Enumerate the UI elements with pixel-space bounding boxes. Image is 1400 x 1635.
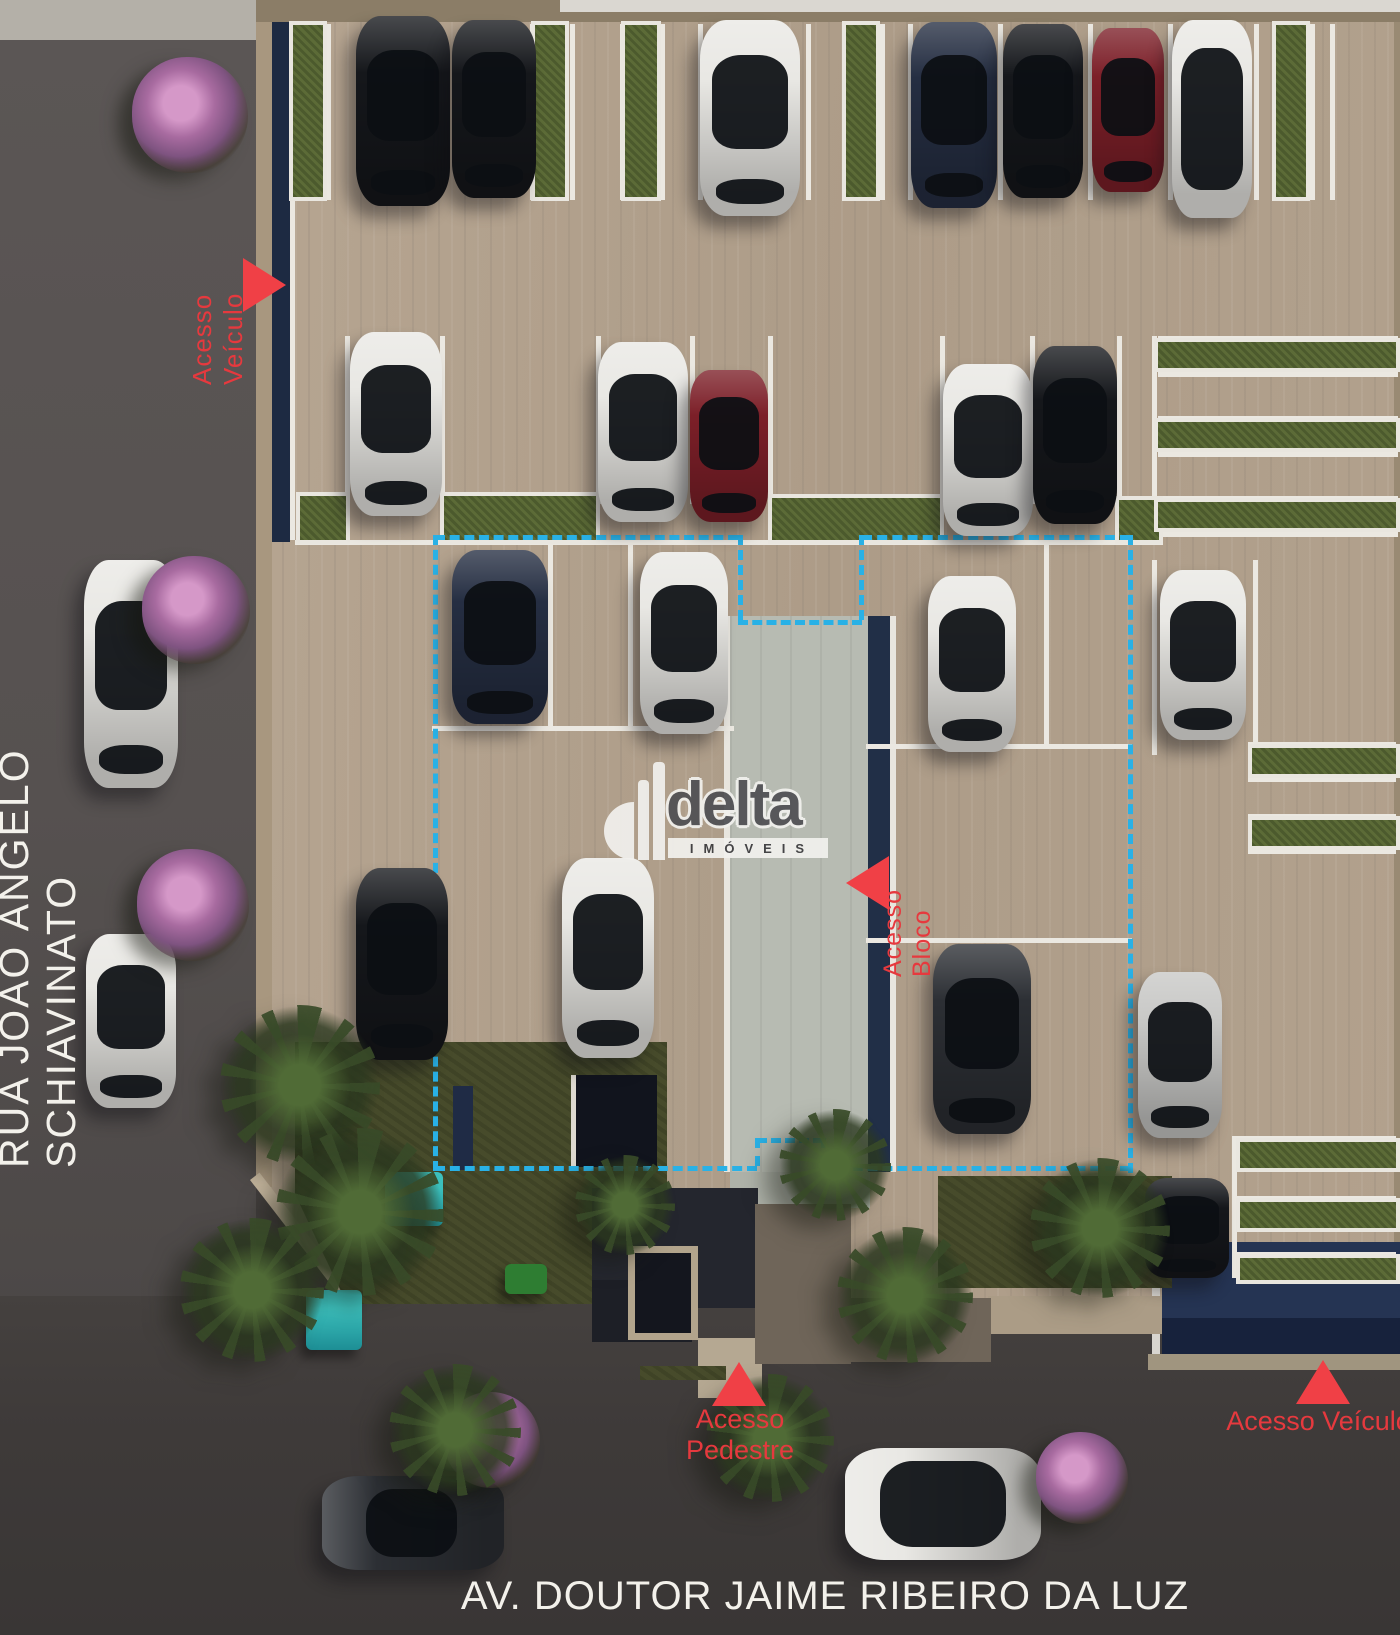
parking-line: [1248, 778, 1396, 782]
car: [86, 934, 176, 1108]
parking-line: [1248, 850, 1396, 854]
hedge-strip: [444, 496, 596, 540]
parking-line: [660, 24, 665, 200]
car: [452, 20, 536, 198]
hedge-strip: [1158, 342, 1396, 368]
logo-subtitle: IMÓVEIS: [668, 838, 828, 858]
parking-line: [1158, 532, 1398, 537]
palm-tree: [837, 1227, 973, 1363]
parking-line: [1158, 336, 1398, 341]
palm-tree: [1030, 1158, 1170, 1298]
car: [845, 1448, 1041, 1560]
car-rear-glass: [925, 173, 984, 197]
parking-line: [570, 24, 575, 200]
car: [1138, 972, 1222, 1138]
access-pedestrian-label: Acesso Pedestre: [640, 1404, 840, 1466]
car: [943, 364, 1033, 536]
car: [640, 552, 728, 734]
car-rear-glass: [99, 745, 163, 775]
parking-line: [1158, 452, 1398, 457]
delta-logo-icon: [604, 802, 634, 860]
car-glass: [361, 365, 431, 453]
parking-line: [1158, 416, 1398, 421]
access-vehicle-top-arrow-icon: [243, 258, 286, 312]
ramp-wall: [453, 1086, 473, 1170]
car: [562, 858, 654, 1058]
hedge-strip: [535, 25, 565, 197]
palm-tree: [779, 1109, 891, 1221]
parking-line: [1236, 1252, 1396, 1257]
car: [1092, 28, 1164, 192]
vehicle-driveway-ramp: [1162, 1318, 1400, 1358]
car-glass: [462, 52, 526, 137]
parking-line: [1232, 1136, 1237, 1278]
access-block-arrow-icon: [846, 856, 889, 910]
flowering-tree: [132, 57, 248, 173]
car-glass: [954, 395, 1022, 478]
car: [356, 868, 448, 1060]
car-rear-glass: [957, 503, 1018, 525]
parking-line: [1236, 1196, 1396, 1201]
car-rear-glass: [365, 481, 428, 505]
hedge-strip: [846, 25, 876, 197]
parking-line: [1236, 1136, 1396, 1141]
logo-brand: delta: [666, 774, 801, 836]
car-rear-glass: [654, 699, 714, 723]
car-glass: [651, 585, 718, 672]
car: [350, 332, 442, 516]
flowering-tree: [137, 849, 249, 961]
hedge-strip: [1276, 25, 1306, 197]
delta-logo-icon: [638, 780, 649, 860]
building-outline: [755, 1138, 760, 1166]
car-rear-glass: [467, 691, 532, 714]
parking-line: [1152, 560, 1157, 755]
car-glass: [367, 903, 437, 995]
stair-pit-edge: [571, 1075, 576, 1167]
parking-line: [1248, 742, 1396, 746]
stair-pit: [575, 1075, 657, 1167]
car-rear-glass: [1104, 161, 1153, 182]
parking-line: [1253, 560, 1258, 755]
car-rear-glass: [1174, 708, 1233, 730]
car-rear-glass: [1151, 1106, 1208, 1128]
car: [598, 342, 688, 522]
access-pedestrian-arrow-icon: [712, 1362, 766, 1406]
car: [1160, 570, 1246, 740]
building-outline: [435, 535, 738, 540]
car: [1003, 24, 1083, 198]
car: [1033, 346, 1117, 524]
parking-line: [768, 336, 773, 504]
parking-line: [295, 540, 1163, 545]
parking-line: [1254, 24, 1259, 200]
car-glass: [712, 55, 788, 149]
car-glass: [97, 965, 165, 1049]
car-glass: [1170, 601, 1235, 683]
delta-imoveis-watermark: delta IMÓVEIS: [604, 750, 834, 868]
car: [933, 944, 1031, 1134]
car-rear-glass: [371, 1024, 434, 1049]
car-glass: [367, 50, 438, 141]
car-glass: [945, 978, 1020, 1069]
car-glass: [1043, 378, 1107, 463]
parking-line: [1117, 336, 1122, 504]
hedge-strip: [1158, 422, 1396, 448]
car-glass: [921, 55, 986, 144]
curb-bottom-right: [1148, 1354, 1400, 1370]
parking-line: [1310, 24, 1315, 200]
car: [928, 576, 1016, 752]
building-outline: [738, 620, 862, 625]
car-rear-glass: [949, 1098, 1016, 1123]
access-vehicle-bottom-label: Acesso Veículo: [1216, 1406, 1400, 1437]
parking-line: [1158, 372, 1398, 377]
building-outline: [1128, 535, 1133, 1173]
palm-tree: [389, 1364, 521, 1496]
hedge-strip: [772, 498, 940, 540]
parking-line: [1044, 540, 1049, 744]
car-rear-glass: [371, 170, 435, 195]
car: [356, 16, 450, 206]
flowering-tree: [142, 556, 250, 664]
street-name-left: RUA JOÃO ÂNGELO SCHIAVINATO: [8, 468, 68, 1168]
access-block-label: Acesso Bloco: [888, 822, 928, 977]
hedge-strip: [1240, 1258, 1396, 1280]
car: [700, 20, 800, 216]
building-outline: [738, 535, 743, 620]
car: [690, 370, 768, 522]
hedge-strip: [1240, 1202, 1396, 1228]
car-rear-glass: [1016, 165, 1070, 188]
parking-line: [326, 24, 331, 200]
parking-line: [806, 24, 811, 200]
street-name-bottom: AV. DOUTOR JAIME RIBEIRO DA LUZ: [430, 1574, 1220, 1619]
hedge-strip: [1240, 1142, 1396, 1168]
car-glass: [939, 608, 1006, 692]
car-glass: [366, 1489, 457, 1557]
car: [1172, 20, 1252, 218]
car-glass: [464, 581, 537, 665]
parking-line: [1330, 24, 1335, 200]
car-glass: [609, 374, 677, 460]
car-rear-glass: [465, 164, 522, 187]
curb-bottom-center: [988, 1296, 1162, 1334]
parking-line: [1248, 814, 1396, 818]
car-glass: [1148, 1002, 1212, 1082]
car-rear-glass: [100, 1075, 161, 1098]
entrance-planter: [628, 1246, 698, 1340]
palm-tree: [575, 1155, 675, 1255]
building-outline: [859, 535, 864, 620]
car-rear-glass: [716, 179, 784, 204]
car: [452, 550, 548, 724]
car-rear-glass: [1158, 1259, 1215, 1272]
palm-tree: [180, 1218, 324, 1362]
hedge-strip: [1252, 820, 1396, 846]
access-vehicle-top-label: Acesso Veículo: [196, 200, 240, 385]
hedge-strip: [625, 25, 657, 197]
parking-line: [548, 540, 553, 726]
hedge-strip: [300, 496, 346, 540]
hedge-strip: [1119, 500, 1159, 540]
car-glass: [1181, 48, 1243, 191]
flowering-tree: [1036, 1432, 1128, 1524]
parking-line: [880, 24, 885, 200]
car-glass: [1013, 55, 1074, 139]
parking-line: [628, 540, 633, 726]
car-rear-glass: [702, 493, 755, 513]
car-rear-glass: [1046, 490, 1103, 513]
playground-equipment: [505, 1264, 547, 1294]
car-rear-glass: [577, 1020, 640, 1046]
car-glass: [699, 397, 758, 470]
hedge-strip: [1158, 502, 1396, 528]
car: [911, 22, 997, 208]
site-plan: delta IMÓVEIS Acesso Veículo Acesso Bloc…: [0, 0, 1400, 1635]
hedge-strip: [293, 25, 323, 197]
building-outline: [433, 535, 438, 1171]
parking-line: [1158, 496, 1398, 501]
car-glass: [573, 894, 643, 990]
car-rear-glass: [942, 719, 1002, 742]
car-glass: [880, 1461, 1005, 1546]
delta-logo-icon: [653, 762, 665, 860]
hedge-strip: [1252, 748, 1396, 774]
access-vehicle-bottom-arrow-icon: [1296, 1360, 1350, 1404]
car-glass: [1101, 58, 1156, 137]
sidewalk-top-right: [560, 0, 1400, 12]
car-rear-glass: [612, 488, 673, 511]
wall-right: [1394, 22, 1400, 1302]
